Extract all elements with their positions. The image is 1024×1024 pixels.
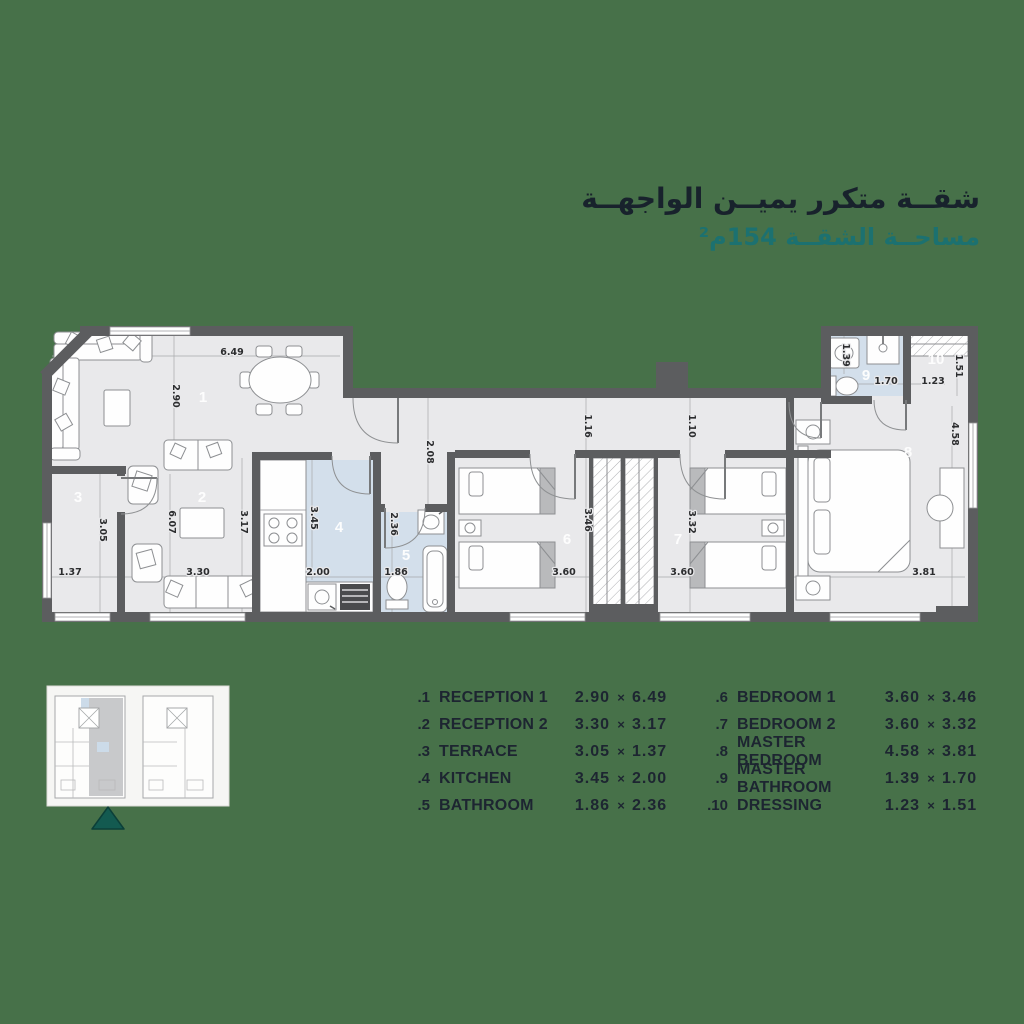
dim-label: 2.90 (170, 384, 181, 408)
single-bed (690, 468, 786, 514)
legend-row: .10 DRESSING 1.23 × 1.51 (702, 792, 994, 819)
legend-dim-1: 1.39 (874, 770, 920, 788)
single-bed (690, 542, 786, 588)
dim-label: 1.23 (921, 376, 944, 387)
oven-appliance (340, 584, 370, 610)
legend-row: .9 MASTER BATHROOM 1.39 × 1.70 (702, 765, 994, 792)
legend-dim-1: 3.60 (874, 716, 920, 734)
title-block: شقــة متكرر يميــن الواجهــة مساحــة الش… (581, 182, 980, 251)
dim-label: 1.37 (58, 567, 81, 578)
side-table (104, 390, 130, 426)
key-plan (45, 682, 235, 832)
room-label-reception2: 2 (198, 489, 206, 506)
dim-label: 3.30 (186, 567, 210, 578)
dim-label: 6.49 (220, 347, 243, 358)
dim-label: 6.07 (166, 510, 177, 533)
dim-label: 3.32 (686, 510, 697, 533)
legend-dim-1: 4.58 (874, 743, 920, 761)
armchair (132, 544, 162, 582)
legend-left-column: .1 RECEPTION 1 2.90 × 6.49 .2 RECEPTION … (404, 684, 684, 819)
legend-room-name: RECEPTION 1 (439, 689, 564, 707)
sofa-three-seat (164, 576, 260, 608)
multiply-icon: × (610, 690, 632, 705)
corner-step (936, 606, 978, 622)
dim-label: 3.60 (670, 567, 694, 578)
bathroom-sink (418, 510, 444, 534)
legend-dim-2: 6.49 (632, 689, 684, 707)
legend-dim-1: 1.86 (564, 797, 610, 815)
legend-dim-1: 3.45 (564, 770, 610, 788)
legend-dim-2: 2.36 (632, 797, 684, 815)
toilet (386, 574, 408, 609)
multiply-icon: × (610, 771, 632, 786)
multiply-icon: × (920, 717, 942, 732)
legend-room-name: BATHROOM (439, 797, 564, 815)
dim-label: 3.81 (912, 567, 935, 578)
room-label-master-bathroom: 9 (862, 367, 870, 384)
room-label-bathroom: 5 (402, 547, 410, 564)
coffee-table (180, 508, 224, 538)
shower-tray (867, 332, 899, 364)
legend-room-name: RECEPTION 2 (439, 716, 564, 734)
multiply-icon: × (610, 798, 632, 813)
dim-label: 3.46 (582, 508, 593, 532)
legend-dim-1: 1.23 (874, 797, 920, 815)
room-label-dressing: 10 (928, 351, 945, 368)
dim-label: 1.51 (953, 354, 964, 377)
stove (264, 514, 302, 546)
room-label-terrace: 3 (74, 489, 82, 506)
key-plan-block-right (143, 696, 213, 798)
armchair (128, 466, 158, 504)
legend-row: .1 RECEPTION 1 2.90 × 6.49 (404, 684, 684, 711)
page: { "title": { "line1": "شقــة متكرر يميــ… (0, 0, 1024, 1024)
multiply-icon: × (610, 744, 632, 759)
dim-label: 4.58 (949, 422, 960, 446)
legend-dim-2: 3.81 (942, 743, 994, 761)
shaft-block (656, 362, 688, 398)
dim-label: 3.17 (238, 510, 249, 533)
legend-dim-1: 3.30 (564, 716, 610, 734)
dim-label: 3.05 (97, 518, 108, 541)
kitchen-sink (308, 584, 336, 610)
nightstand (762, 520, 784, 536)
multiply-icon: × (920, 690, 942, 705)
room-label-bedroom1: 6 (563, 531, 571, 548)
multiply-icon: × (920, 798, 942, 813)
legend-row: .5 BATHROOM 1.86 × 2.36 (404, 792, 684, 819)
dim-label: 1.10 (686, 414, 697, 438)
legend-row: .2 RECEPTION 2 3.30 × 3.17 (404, 711, 684, 738)
dim-label: 3.60 (552, 567, 576, 578)
legend-dim-2: 1.37 (632, 743, 684, 761)
floor-plan: 6.49 2.90 3.05 1.37 6.07 3.17 3.30 3.45 … (40, 318, 985, 630)
legend-row: .4 KITCHEN 3.45 × 2.00 (404, 765, 684, 792)
legend-dim-1: 3.05 (564, 743, 610, 761)
legend-num: .3 (404, 743, 430, 760)
multiply-icon: × (920, 744, 942, 759)
dim-label: 1.70 (874, 376, 898, 387)
wardrobe (625, 458, 654, 608)
room-label-bedroom2: 7 (674, 531, 682, 548)
dim-label: 2.08 (424, 440, 435, 464)
bathtub (423, 546, 447, 612)
dim-label: 3.45 (308, 506, 319, 529)
legend-dim-1: 2.90 (564, 689, 610, 707)
legend-room-name: DRESSING (737, 797, 874, 815)
dim-label: 2.36 (388, 512, 399, 536)
legend-dim-1: 3.60 (874, 689, 920, 707)
multiply-icon: × (920, 771, 942, 786)
sofa-two-seat (164, 440, 232, 470)
nightstand (459, 520, 481, 536)
dim-label: 1.86 (384, 567, 408, 578)
room-label-master-bedroom: 8 (904, 444, 912, 461)
apartment-area-arabic: مساحــة الشقــة 154م² (581, 223, 980, 251)
legend-dim-2: 1.51 (942, 797, 994, 815)
key-plan-block-left (55, 696, 125, 798)
legend-room-name: TERRACE (439, 743, 564, 761)
multiply-icon: × (610, 717, 632, 732)
legend-num: .2 (404, 716, 430, 733)
legend-dim-2: 3.17 (632, 716, 684, 734)
single-bed (459, 542, 555, 588)
legend-row: .3 TERRACE 3.05 × 1.37 (404, 738, 684, 765)
legend-room-name: BEDROOM 2 (737, 716, 874, 734)
legend-num: .4 (404, 770, 430, 787)
legend-num: .6 (702, 689, 728, 706)
apartment-title-arabic: شقــة متكرر يميــن الواجهــة (581, 182, 980, 215)
legend-room-name: KITCHEN (439, 770, 564, 788)
legend-row: .6 BEDROOM 1 3.60 × 3.46 (702, 684, 994, 711)
dim-label: 1.16 (582, 414, 593, 438)
single-bed (459, 468, 555, 514)
legend-num: .1 (404, 689, 430, 706)
legend-dim-2: 3.46 (942, 689, 994, 707)
wardrobe (593, 458, 621, 608)
location-triangle-icon (92, 807, 124, 829)
dim-label: 1.39 (840, 343, 851, 366)
legend-dim-2: 3.32 (942, 716, 994, 734)
legend-num: .8 (702, 743, 728, 760)
legend-num: .5 (404, 797, 430, 814)
legend-dim-2: 2.00 (632, 770, 684, 788)
legend-num: .7 (702, 716, 728, 733)
room-label-reception1: 1 (199, 389, 207, 406)
room-label-kitchen: 4 (335, 519, 344, 536)
legend-room-name: BEDROOM 1 (737, 689, 874, 707)
legend-right-column: .6 BEDROOM 1 3.60 × 3.46 .7 BEDROOM 2 3.… (702, 684, 994, 819)
dim-label: 2.00 (306, 567, 330, 578)
legend-num: .10 (702, 797, 728, 814)
legend-dim-2: 1.70 (942, 770, 994, 788)
legend-num: .9 (702, 770, 728, 787)
toilet (827, 376, 858, 396)
